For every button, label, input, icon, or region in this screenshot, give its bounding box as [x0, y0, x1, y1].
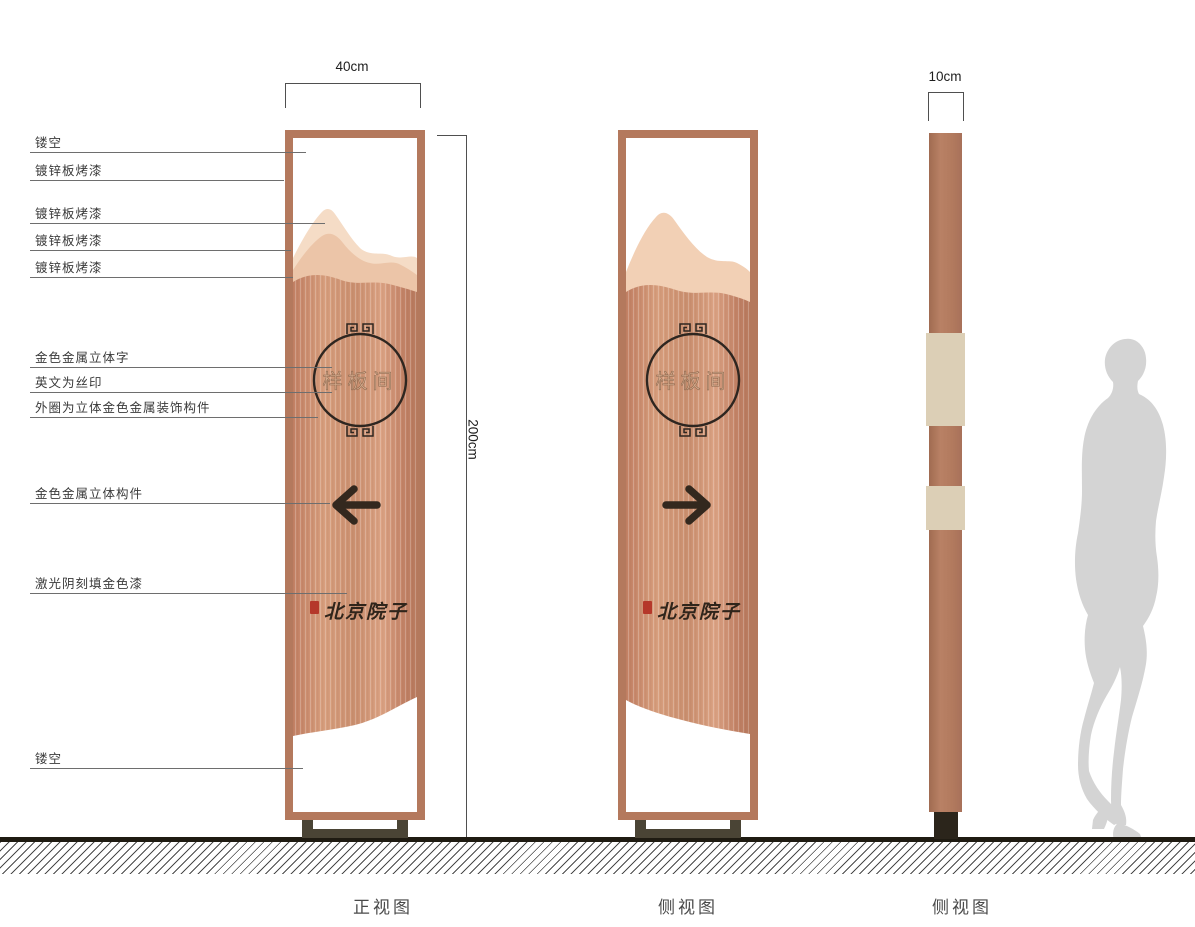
annotation-item: 镀锌板烤漆	[30, 233, 291, 251]
copper-brush-texture	[626, 285, 750, 734]
annotation-label: 镂空	[35, 132, 62, 151]
annotation-label: 激光阴刻填金色漆	[35, 573, 143, 592]
side-view-sign: 样板间 北京院子	[618, 130, 758, 838]
dimension-front-width: 40cm	[285, 59, 419, 74]
front-view-sign: 样板间 北京院子	[285, 130, 425, 838]
person-silhouette	[1030, 337, 1178, 843]
annotation-item: 镂空	[30, 751, 303, 769]
red-seal	[643, 601, 652, 614]
signage-design-sheet: 样板间 北京院子	[0, 0, 1195, 927]
dimension-line-height	[466, 135, 467, 838]
brand-calligraphy: 北京院子	[324, 601, 408, 623]
annotation-label: 镀锌板烤漆	[35, 257, 103, 276]
dimension-bracket-front	[285, 83, 421, 108]
annotation-label: 金色金属立体构件	[35, 483, 143, 502]
annotation-label: 镀锌板烤漆	[35, 160, 103, 179]
annotation-item: 镀锌板烤漆	[30, 163, 284, 181]
dimension-height: 200cm	[466, 415, 481, 465]
annotation-item: 激光阴刻填金色漆	[30, 576, 347, 594]
dimension-tick-top	[437, 135, 466, 136]
annotation-item: 镂空	[30, 135, 306, 153]
annotation-label: 镀锌板烤漆	[35, 203, 103, 222]
room-name-text: 样板间	[323, 370, 398, 393]
brand-calligraphy: 北京院子	[657, 601, 741, 623]
annotation-item: 金色金属立体构件	[30, 486, 330, 504]
ground-hatch	[0, 842, 1195, 874]
annotation-label: 英文为丝印	[35, 372, 103, 391]
annotation-label: 外圈为立体金色金属装饰构件	[35, 397, 211, 416]
dimension-side-width: 10cm	[898, 69, 992, 84]
raised-ring-strip	[926, 333, 965, 426]
annotation-item: 镀锌板烤漆	[30, 260, 293, 278]
annotation-item: 外圈为立体金色金属装饰构件	[30, 400, 318, 418]
annotation-item: 英文为丝印	[30, 375, 332, 393]
raised-arrow-strip	[926, 486, 965, 530]
ground-line	[0, 837, 1195, 842]
dimension-bracket-side	[928, 92, 964, 121]
view-label-front: 正视图	[313, 893, 453, 918]
side-profile-slab	[929, 133, 962, 812]
view-label-side1: 侧视图	[618, 893, 758, 918]
sign-base	[635, 820, 741, 838]
annotation-label: 镀锌板烤漆	[35, 230, 103, 249]
annotation-label: 镂空	[35, 748, 62, 767]
slab-foot	[934, 812, 958, 839]
view-label-side2: 侧视图	[892, 893, 1032, 918]
annotation-item: 镀锌板烤漆	[30, 206, 325, 224]
annotation-item: 金色金属立体字	[30, 350, 332, 368]
red-seal	[310, 601, 319, 614]
room-name-text: 样板间	[656, 370, 731, 393]
sign-base	[302, 820, 408, 838]
annotation-label: 金色金属立体字	[35, 347, 130, 366]
